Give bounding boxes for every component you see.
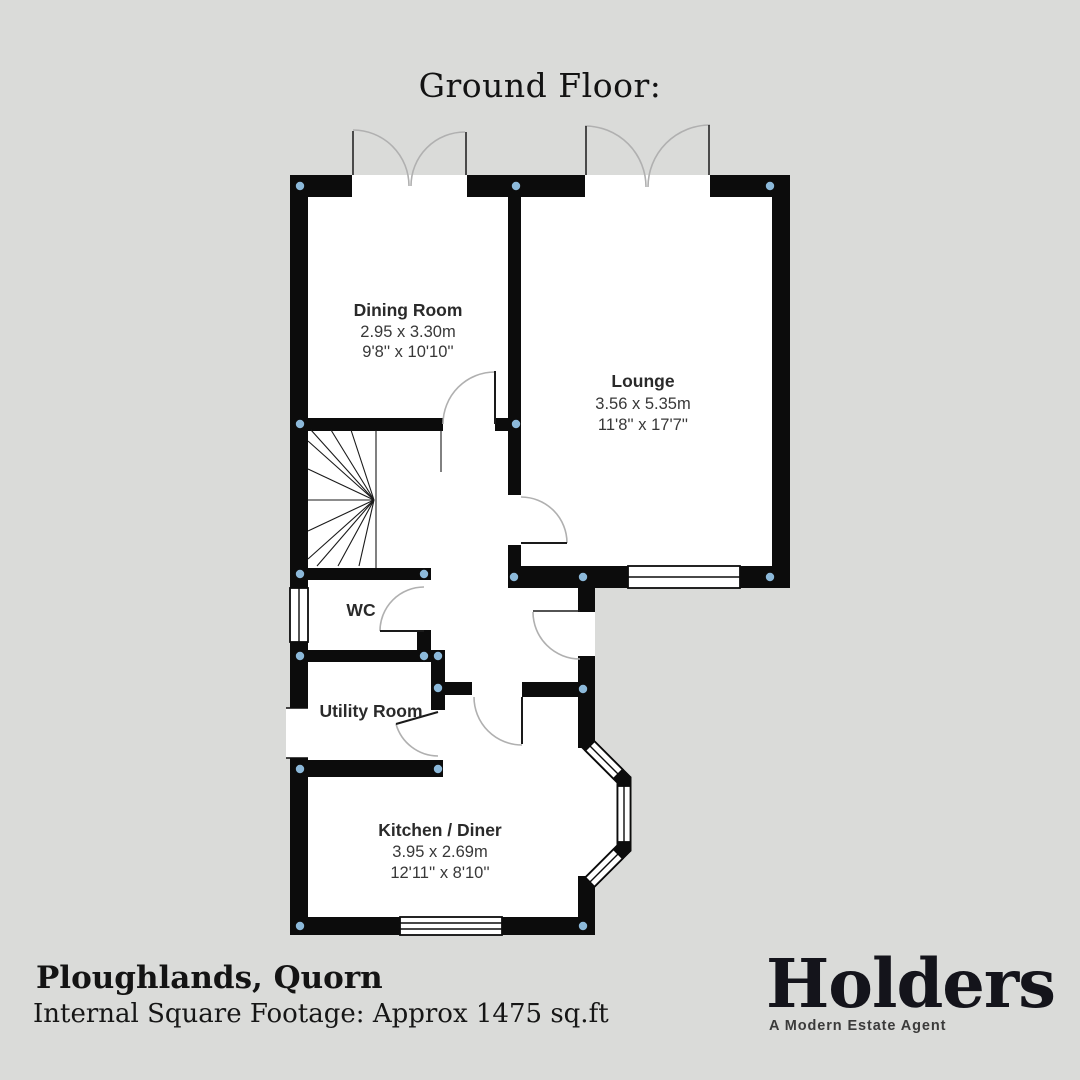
room-label-dining: Dining Room 2.95 x 3.30m 9'8'' x 10'10'' — [354, 300, 463, 361]
lounge-name: Lounge — [611, 371, 674, 391]
kitchen-window — [400, 917, 502, 935]
dining-room-name: Dining Room — [354, 300, 463, 320]
square-footage: Internal Square Footage: Approx 1475 sq.… — [33, 999, 609, 1029]
room-label-wc: WC — [346, 600, 376, 620]
room-label-utility: Utility Room — [319, 701, 422, 721]
lounge-metric: 3.56 x 5.35m — [595, 395, 690, 413]
floorplan-page: Ground Floor: — [0, 0, 1080, 1080]
dining-room-metric: 2.95 x 3.30m — [360, 323, 455, 341]
room-label-kitchen: Kitchen / Diner 3.95 x 2.69m 12'11'' x 8… — [378, 820, 502, 882]
property-name: Ploughlands, Quorn — [36, 960, 383, 996]
lounge-imperial: 11'8'' x 17'7'' — [598, 416, 688, 434]
wc-window — [290, 588, 308, 642]
dining-room-imperial: 9'8'' x 10'10'' — [362, 343, 453, 361]
floor-plan: Dining Room 2.95 x 3.30m 9'8'' x 10'10''… — [0, 0, 1080, 1080]
kitchen-diner-metric: 3.95 x 2.69m — [392, 843, 487, 861]
brand-tagline: A Modern Estate Agent — [769, 1018, 946, 1034]
kitchen-diner-name: Kitchen / Diner — [378, 820, 502, 840]
floor-area — [290, 175, 790, 935]
utility-side-opening — [286, 708, 308, 758]
brand-logo: Holders — [766, 944, 1055, 1023]
lounge-window — [628, 566, 740, 588]
kitchen-diner-imperial: 12'11'' x 8'10'' — [390, 864, 489, 882]
utility-room-name: Utility Room — [319, 701, 422, 721]
bay-window-middle — [618, 786, 631, 842]
wc-name: WC — [346, 600, 376, 620]
